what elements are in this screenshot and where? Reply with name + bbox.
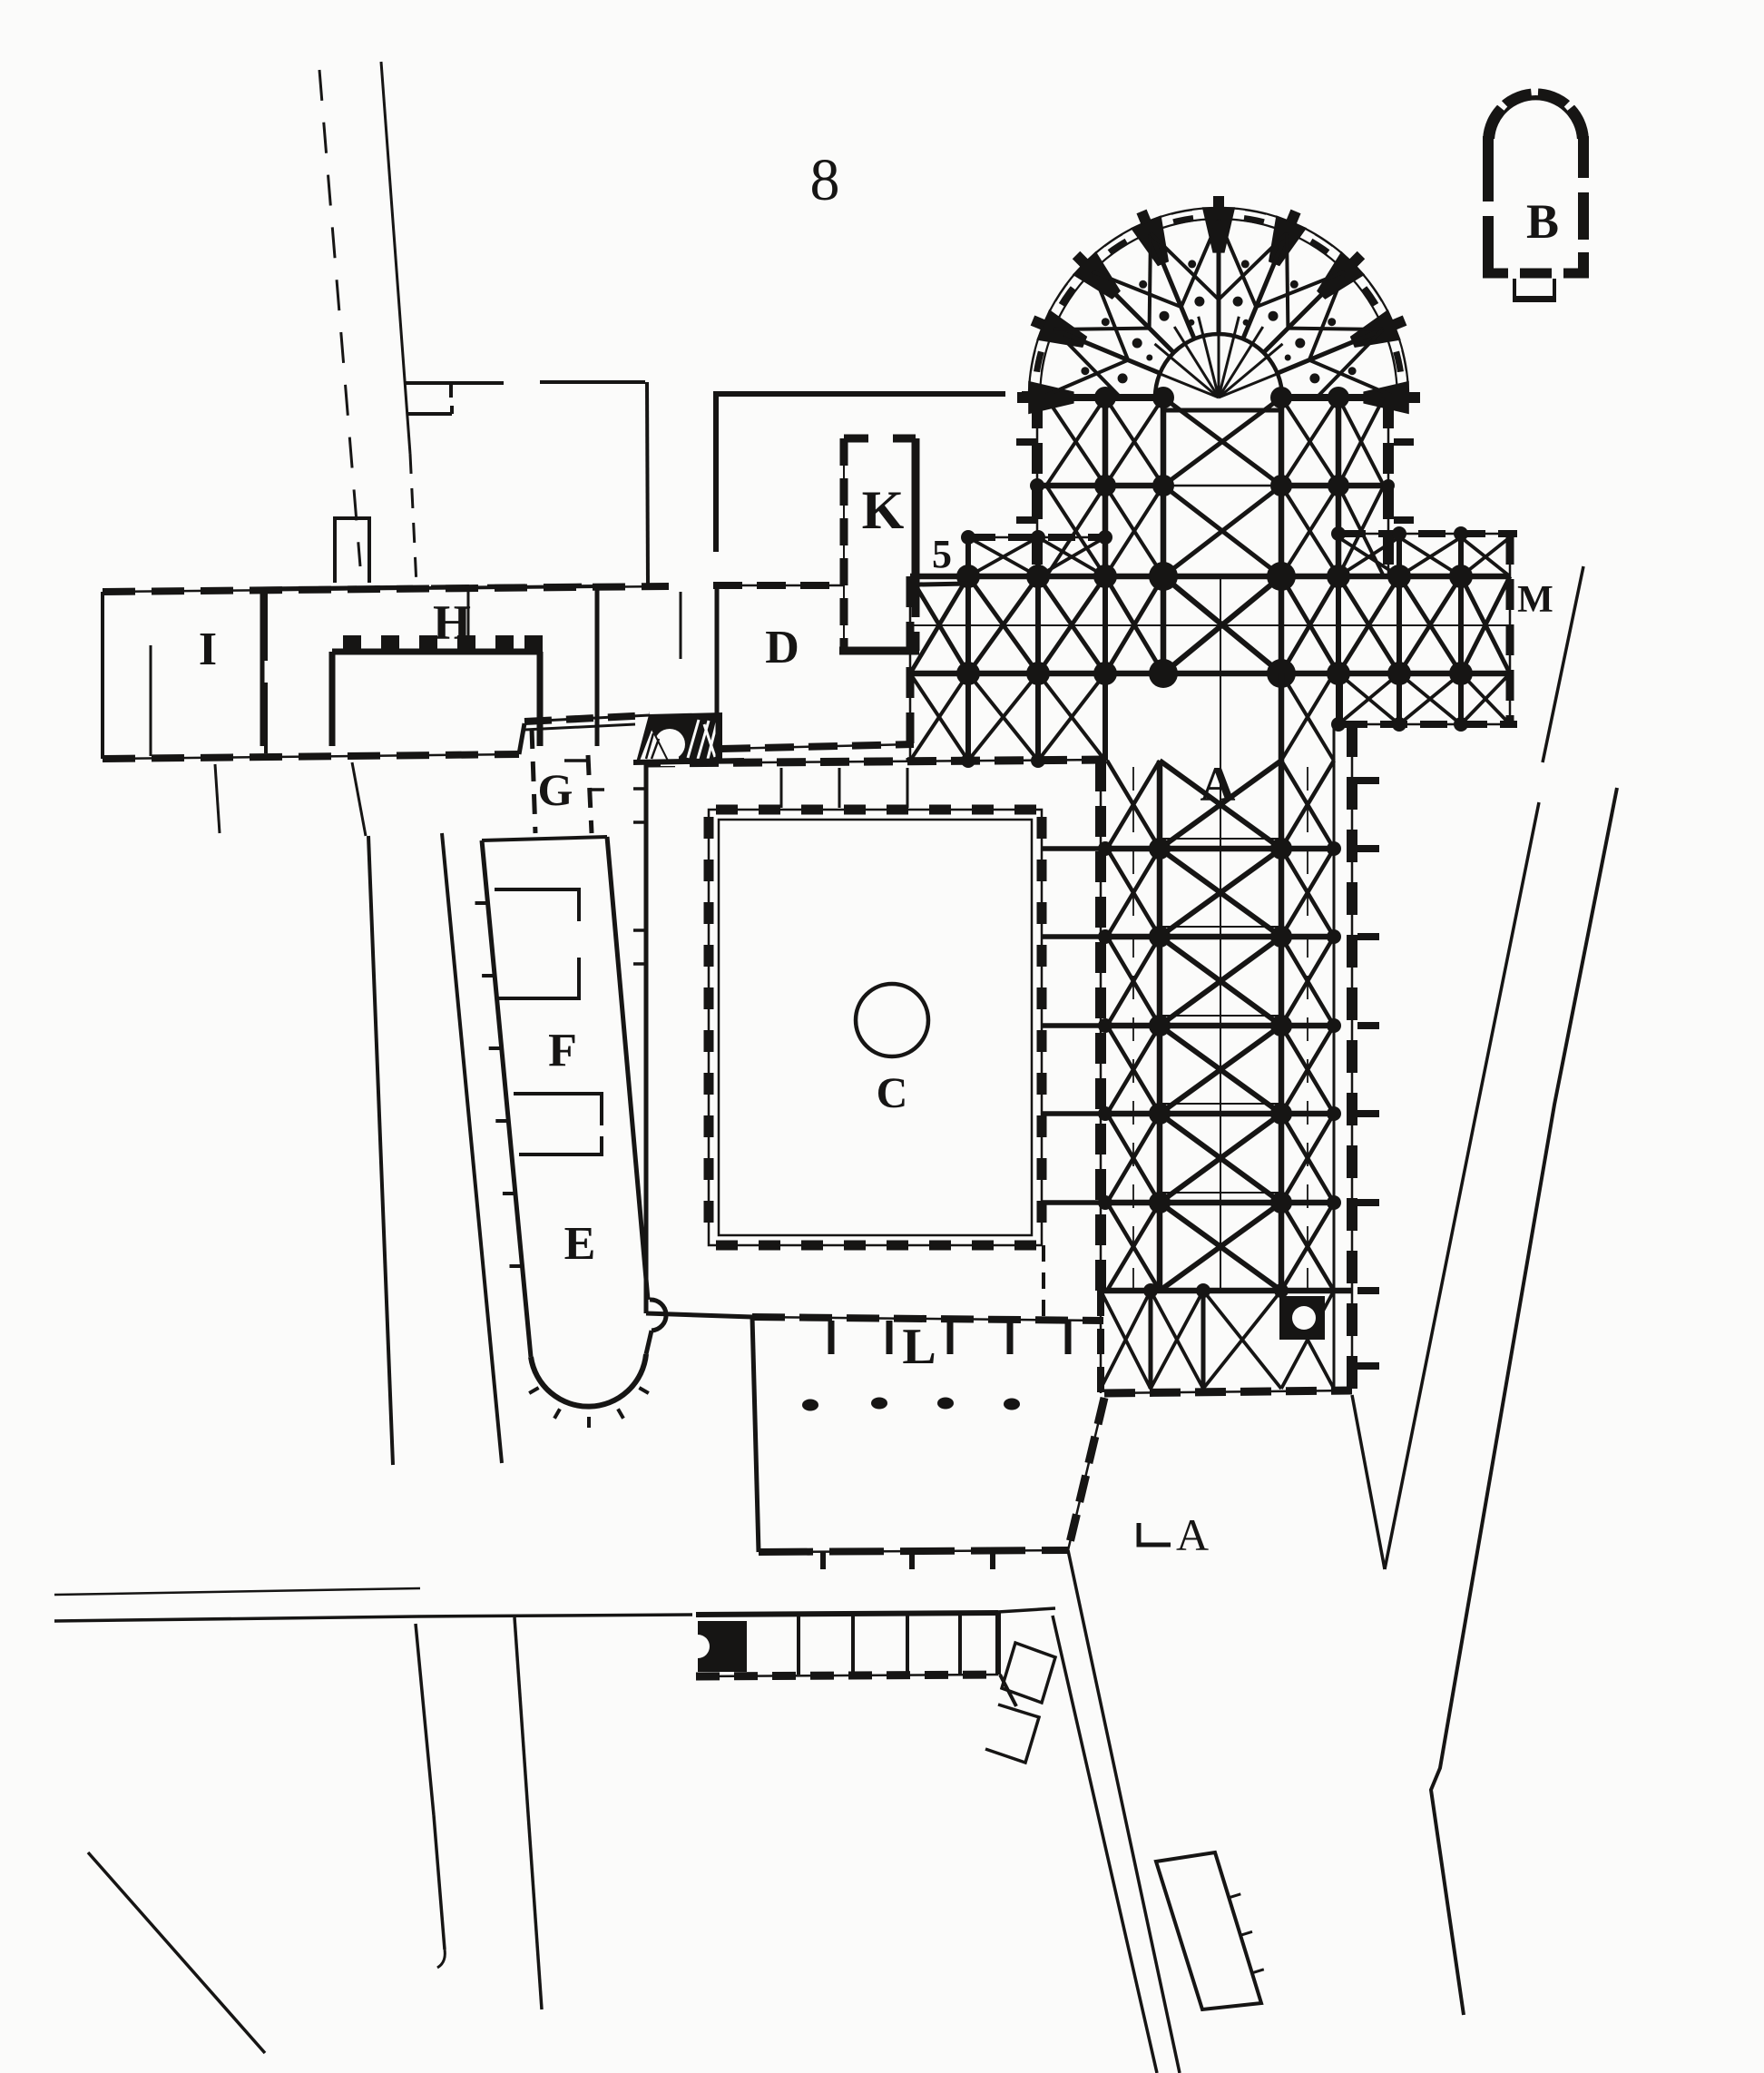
svg-text:B: B [1526,194,1559,249]
svg-text:K: K [862,480,905,540]
svg-text:G: G [538,764,573,815]
svg-text:5: 5 [932,532,952,576]
svg-text:A: A [1176,1509,1209,1560]
svg-text:8: 8 [810,147,840,213]
svg-text:E: E [564,1218,596,1270]
svg-text:A: A [1200,757,1236,811]
svg-text:C: C [877,1069,908,1117]
svg-text:F: F [548,1025,577,1076]
svg-text:M: M [1517,579,1553,621]
svg-text:D: D [765,622,799,673]
svg-text:L: L [902,1319,936,1375]
svg-text:I: I [199,624,217,675]
svg-text:H: H [433,595,471,650]
